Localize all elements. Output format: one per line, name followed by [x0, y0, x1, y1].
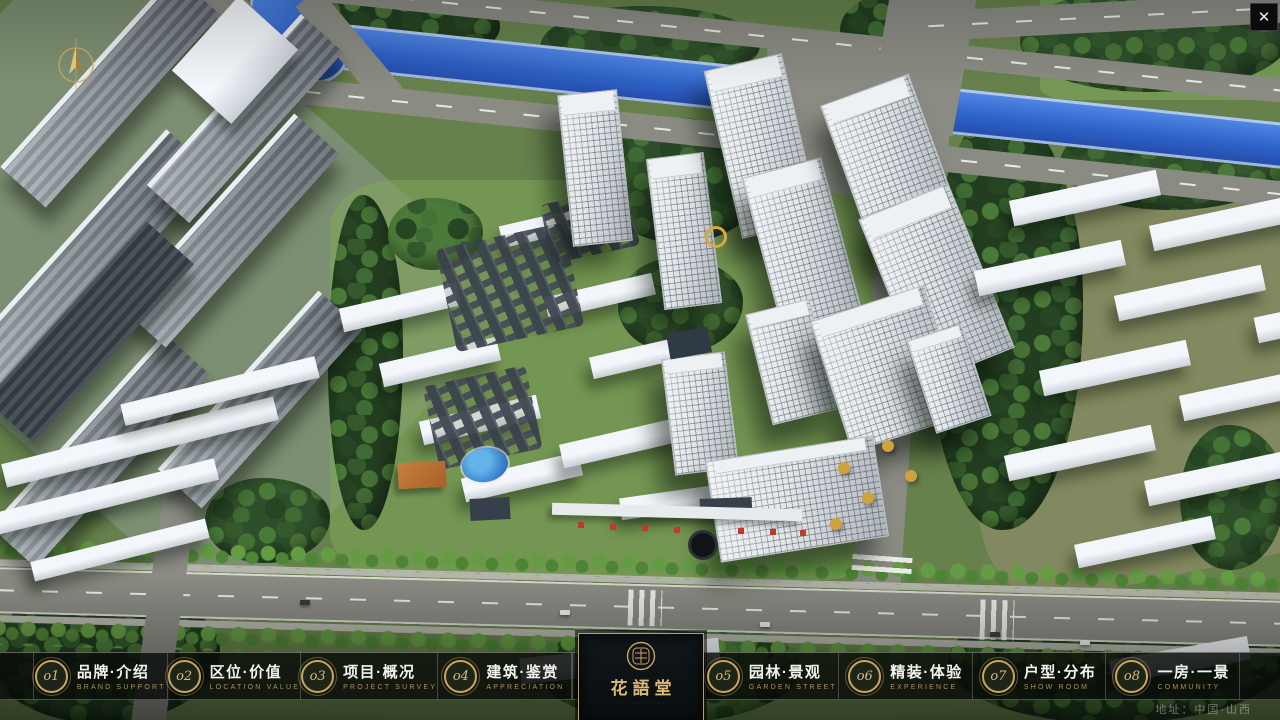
menu-badge: o1	[35, 660, 68, 693]
menu-subtitle: GARDEN STREET	[749, 684, 837, 691]
menu-labels: 户型·分布 SHOW ROOM	[1024, 661, 1097, 691]
menu-subtitle: COMMUNITY	[1157, 684, 1220, 691]
menu-labels: 项目·概况 PROJECT SURVEY	[343, 661, 437, 691]
car	[560, 610, 570, 615]
address-label: 地址：中国·山西	[1155, 701, 1252, 717]
menu-badge: o5	[707, 660, 740, 693]
tree-patch	[1180, 425, 1280, 570]
menu-item-brand[interactable]: o1 品牌·介绍 BRAND SUPPORT	[34, 653, 168, 699]
menu-number: o3	[310, 669, 326, 684]
menu-badge: o4	[444, 660, 477, 693]
courtyard-roof	[469, 497, 510, 521]
menu-subtitle: PROJECT SURVEY	[343, 684, 437, 691]
gate-flag	[800, 530, 806, 536]
menu-labels: 园林·景观 GARDEN STREET	[749, 661, 837, 691]
menu-labels: 精装·体验 EXPERIENCE	[890, 661, 963, 691]
menu-title: 园林·景观	[749, 661, 822, 682]
autumn-tree	[882, 440, 894, 452]
menu-item-views[interactable]: o8 一房·一景 COMMUNITY	[1106, 653, 1240, 699]
menu-spacer-left	[0, 653, 34, 699]
car	[760, 622, 770, 627]
menu-item-architecture[interactable]: o4 建筑·鉴赏 APPRECIATION	[438, 653, 572, 699]
menu-badge: o7	[982, 660, 1015, 693]
menu-number: o1	[43, 669, 59, 684]
close-button[interactable]: ✕	[1250, 3, 1278, 31]
project-logo-title: 花語堂	[606, 674, 677, 699]
autumn-tree	[905, 470, 917, 482]
menu-title: 精装·体验	[890, 661, 963, 682]
autumn-tree	[830, 518, 842, 530]
car	[300, 600, 310, 605]
menu-number: o8	[1124, 669, 1140, 684]
close-icon: ✕	[1258, 8, 1271, 26]
menu-number: o5	[715, 669, 731, 684]
menu-title: 建筑·鉴赏	[486, 661, 559, 682]
car	[990, 632, 1000, 637]
menu-subtitle: EXPERIENCE	[890, 684, 957, 691]
menu-subtitle: APPRECIATION	[486, 684, 564, 691]
crosswalk	[628, 590, 663, 627]
menu-badge: o8	[1115, 660, 1148, 693]
menu-labels: 品牌·介绍 BRAND SUPPORT	[77, 661, 166, 691]
menu-item-garden[interactable]: o5 园林·景观 GARDEN STREET	[706, 653, 840, 699]
gate-flag	[674, 527, 680, 533]
entrance-circle	[688, 530, 718, 560]
menu-title: 项目·概况	[343, 661, 416, 682]
gate-flag	[642, 525, 648, 531]
gate-flag	[770, 529, 776, 535]
car	[1080, 640, 1090, 645]
gate-flag	[738, 528, 744, 534]
menu-subtitle: BRAND SUPPORT	[77, 684, 166, 691]
menu-number: o6	[857, 669, 873, 684]
menu-badge: o6	[848, 660, 881, 693]
menu-labels: 一房·一景 COMMUNITY	[1157, 661, 1230, 691]
menu-spacer-right	[1240, 653, 1280, 699]
menu-labels: 区位·价值 LOCATION VALUE	[210, 661, 300, 691]
menu-badge: o2	[168, 660, 201, 693]
seal-emblem-icon	[626, 641, 656, 671]
menu-title: 区位·价值	[210, 661, 283, 682]
menu-item-location[interactable]: o2 区位·价值 LOCATION VALUE	[168, 653, 302, 699]
project-logo-panel: 花語堂 · · · · · · · · · ·	[578, 633, 704, 720]
gate-flag	[578, 522, 584, 528]
menu-number: o7	[990, 669, 1006, 684]
menu-badge: o3	[301, 660, 334, 693]
gate-flag	[610, 524, 616, 530]
landscape-feature	[705, 226, 727, 248]
compass-icon	[50, 36, 102, 94]
menu-number: o2	[176, 669, 192, 684]
menu-subtitle: SHOW ROOM	[1024, 684, 1089, 691]
autumn-tree	[862, 492, 874, 504]
menu-subtitle: LOCATION VALUE	[210, 684, 300, 691]
menu-labels: 建筑·鉴赏 APPRECIATION	[486, 661, 564, 691]
menu-title: 户型·分布	[1024, 661, 1097, 682]
autumn-tree	[838, 462, 850, 474]
project-logo-tagline: · · · · · · · · · ·	[617, 701, 665, 707]
kindergarten-building	[397, 461, 446, 489]
menu-number: o4	[453, 669, 469, 684]
aerial-render: ✕ o1 品牌·介绍 BRAND SUPPORT o2 区位·价值 LOCATI…	[0, 0, 1280, 720]
menu-item-interior[interactable]: o6 精装·体验 EXPERIENCE	[839, 653, 973, 699]
menu-title: 品牌·介绍	[77, 661, 150, 682]
menu-item-floorplan[interactable]: o7 户型·分布 SHOW ROOM	[973, 653, 1107, 699]
menu-title: 一房·一景	[1157, 661, 1230, 682]
menu-item-project[interactable]: o3 项目·概况 PROJECT SURVEY	[301, 653, 438, 699]
